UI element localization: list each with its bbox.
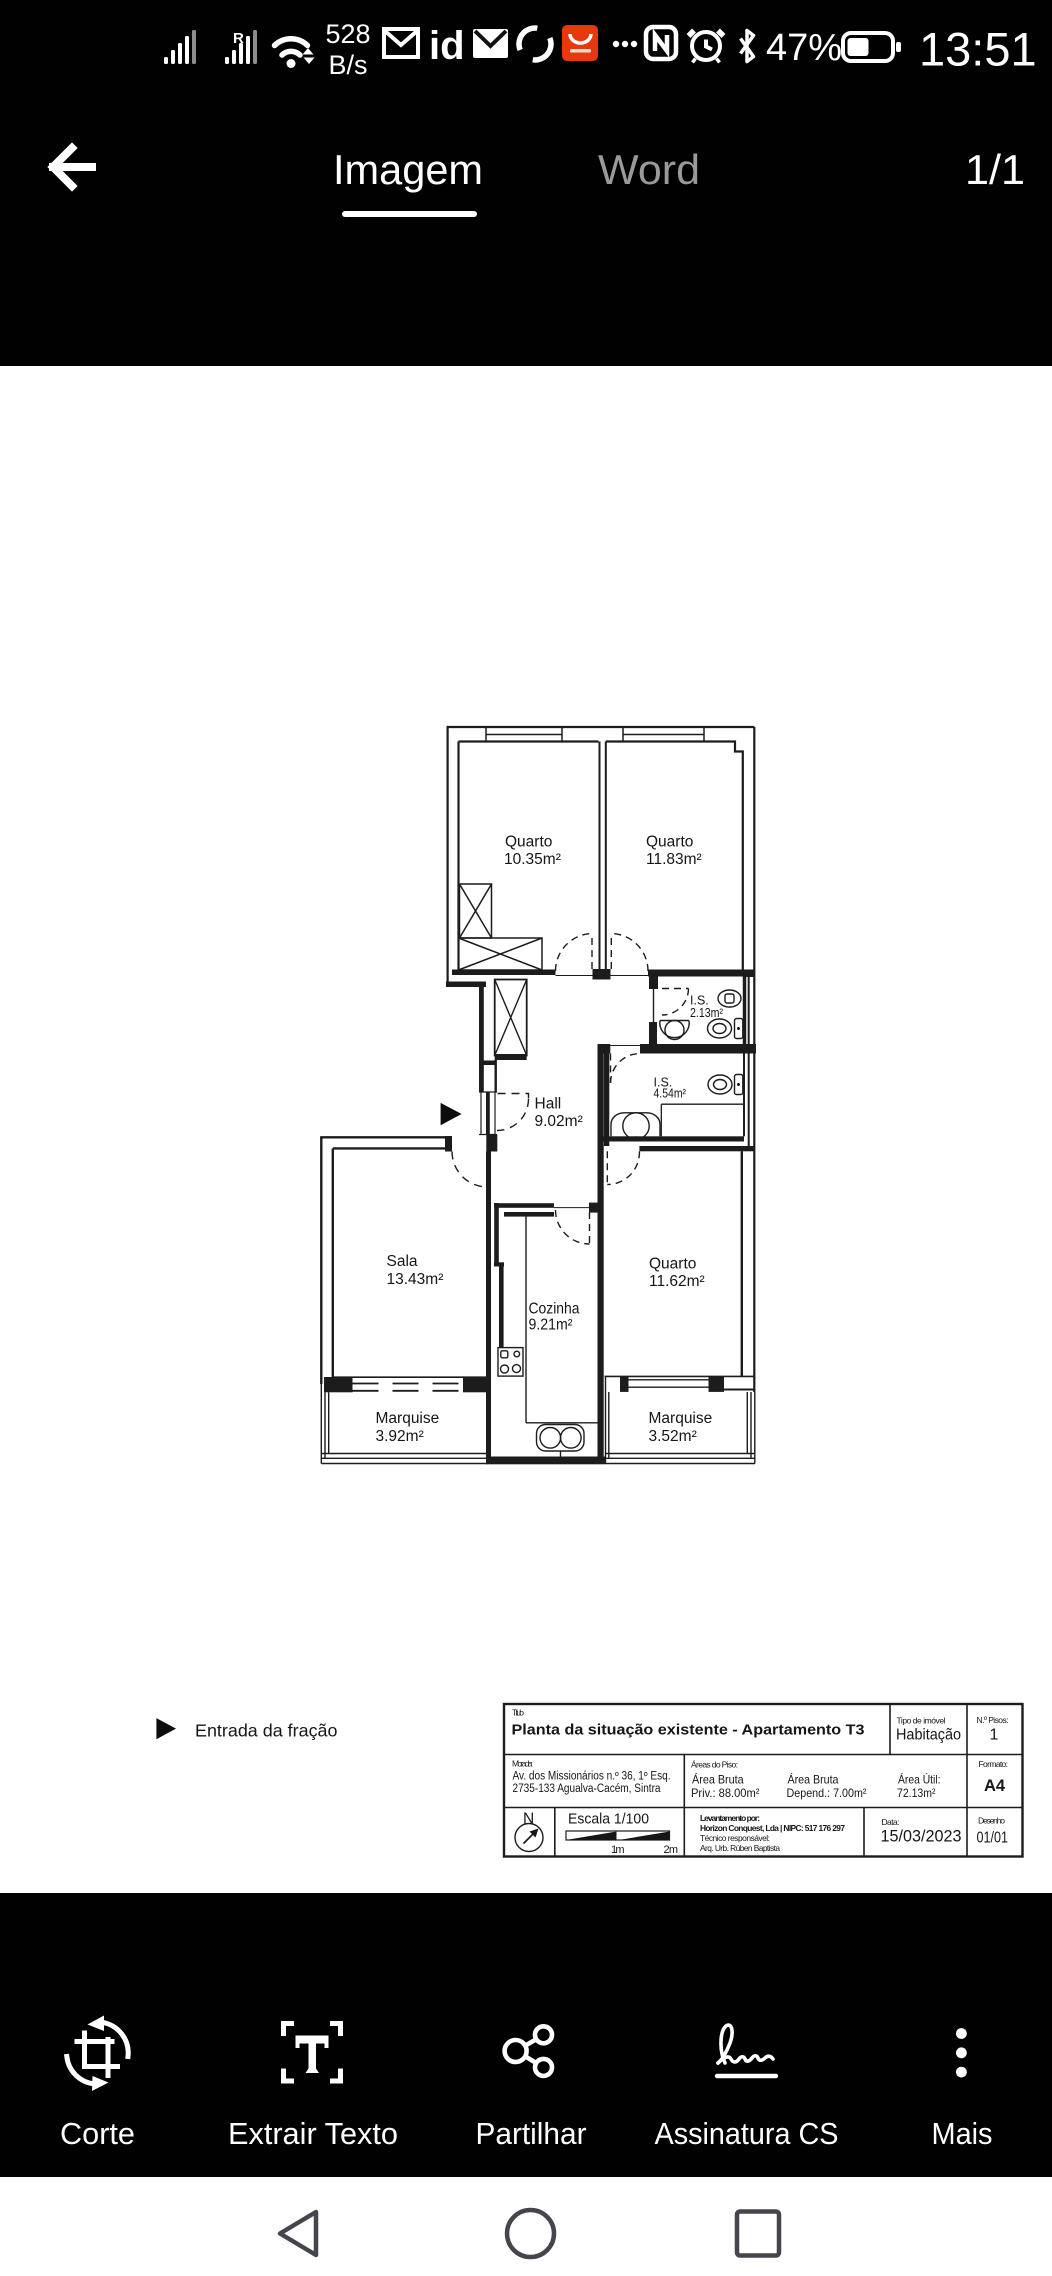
svg-text:72.13m²: 72.13m² (897, 1786, 936, 1800)
svg-text:1: 1 (990, 1727, 999, 1744)
svg-text:Desenho: Desenho (978, 1816, 1005, 1826)
svg-text:B/s: B/s (328, 50, 367, 80)
svg-text:4.54m²: 4.54m² (654, 1087, 687, 1101)
svg-text:Assinatura CS: Assinatura CS (655, 2116, 839, 2151)
svg-text:Sala: Sala (387, 1253, 418, 1270)
svg-text:2.13m²: 2.13m² (690, 1006, 723, 1020)
svg-text:Priv.: 88.00m²: Priv.: 88.00m² (691, 1786, 760, 1800)
svg-text:Técnico responsável:: Técnico responsável: (700, 1833, 770, 1843)
svg-text:47%: 47% (766, 27, 842, 69)
svg-text:Quarto: Quarto (646, 834, 693, 851)
svg-text:Corte: Corte (60, 2116, 135, 2151)
svg-text:11.62m²: 11.62m² (649, 1273, 705, 1290)
svg-text:11.83m²: 11.83m² (646, 851, 702, 868)
svg-text:Áreas do Piso:: Áreas do Piso: (691, 1760, 738, 1770)
svg-text:15/03/2023: 15/03/2023 (881, 1828, 962, 1846)
svg-text:Título: Título (512, 1708, 524, 1718)
svg-text:Hall: Hall (535, 1096, 562, 1113)
svg-text:3.92m²: 3.92m² (376, 1428, 424, 1445)
svg-text:Extrair Texto: Extrair Texto (228, 2116, 398, 2151)
svg-text:9.21m²: 9.21m² (529, 1317, 573, 1334)
svg-text:Word: Word (598, 146, 700, 193)
svg-text:Área Útil:: Área Útil: (898, 1773, 941, 1787)
svg-text:13:51: 13:51 (919, 23, 1037, 76)
svg-text:13.43m²: 13.43m² (387, 1271, 444, 1288)
svg-text:Área Bruta: Área Bruta (692, 1773, 744, 1787)
svg-text:Entrada da fração: Entrada da fração (195, 1721, 338, 1741)
svg-text:Imagem: Imagem (333, 146, 483, 193)
svg-text:Área Bruta: Área Bruta (788, 1773, 839, 1787)
svg-text:Quarto: Quarto (649, 1256, 696, 1273)
svg-text:528: 528 (325, 19, 370, 49)
svg-text:2735-133 Agualva-Cacém, Sintra: 2735-133 Agualva-Cacém, Sintra (513, 1783, 662, 1795)
svg-text:Depend.: 7.00m²: Depend.: 7.00m² (787, 1786, 867, 1800)
svg-text:01/01: 01/01 (977, 1830, 1009, 1847)
svg-text:Levantamento por:: Levantamento por: (700, 1813, 760, 1823)
svg-text:Horizon Conquest, Lda | NIPC:: Horizon Conquest, Lda | NIPC: 517 176 29… (700, 1823, 845, 1833)
svg-text:Partilhar: Partilhar (476, 2116, 587, 2151)
svg-text:10.35m²: 10.35m² (504, 851, 561, 868)
svg-text:Quarto: Quarto (505, 834, 552, 851)
svg-text:Av. dos Missionários n.º 36, 1: Av. dos Missionários n.º 36, 1º Esq. (513, 1771, 671, 1783)
svg-text:Cozinha: Cozinha (529, 1301, 580, 1318)
svg-text:Tipo de imóvel: Tipo de imóvel (897, 1716, 946, 1726)
svg-text:Planta da situação existente -: Planta da situação existente - Apartamen… (512, 1723, 865, 1739)
svg-text:1m: 1m (611, 1844, 625, 1856)
svg-text:Data:: Data: (882, 1817, 900, 1827)
svg-text:3.52m²: 3.52m² (649, 1428, 697, 1445)
svg-text:Morada:: Morada: (512, 1759, 533, 1769)
svg-text:id: id (429, 24, 465, 68)
svg-text:Escala 1/100: Escala 1/100 (568, 1812, 649, 1828)
svg-text:Arq. Urb. Rúben Baptista: Arq. Urb. Rúben Baptista (700, 1843, 780, 1853)
svg-text:A4: A4 (984, 1777, 1006, 1795)
svg-text:Mais: Mais (932, 2116, 993, 2151)
svg-text:Formato:: Formato: (979, 1759, 1009, 1769)
svg-text:Marquise: Marquise (376, 1410, 440, 1427)
svg-text:2m: 2m (664, 1844, 679, 1856)
svg-text:Marquise: Marquise (649, 1410, 713, 1427)
svg-text:Habitação: Habitação (896, 1727, 961, 1744)
svg-text:N.º Pisos:: N.º Pisos: (977, 1715, 1009, 1725)
svg-text:1/1: 1/1 (965, 146, 1025, 193)
svg-text:9.02m²: 9.02m² (535, 1113, 583, 1130)
